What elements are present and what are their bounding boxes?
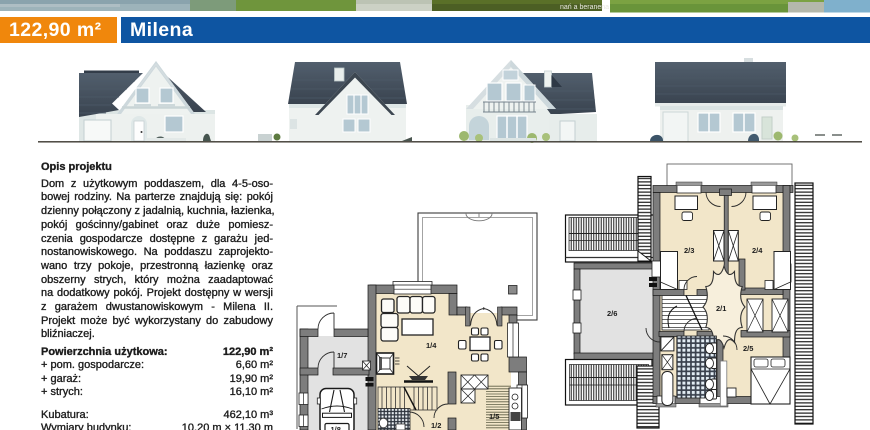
svg-text:2/3: 2/3 [684,246,694,255]
svg-text:1/4: 1/4 [426,341,437,350]
svg-text:1/8: 1/8 [331,425,341,430]
svg-text:2/5: 2/5 [743,344,753,353]
svg-text:2/6: 2/6 [607,309,617,318]
svg-text:2/4: 2/4 [752,246,763,255]
svg-text:1/7: 1/7 [337,351,347,360]
svg-text:2/1: 2/1 [716,304,726,313]
svg-text:1/2: 1/2 [431,421,441,430]
svg-text:1/5: 1/5 [489,412,499,421]
